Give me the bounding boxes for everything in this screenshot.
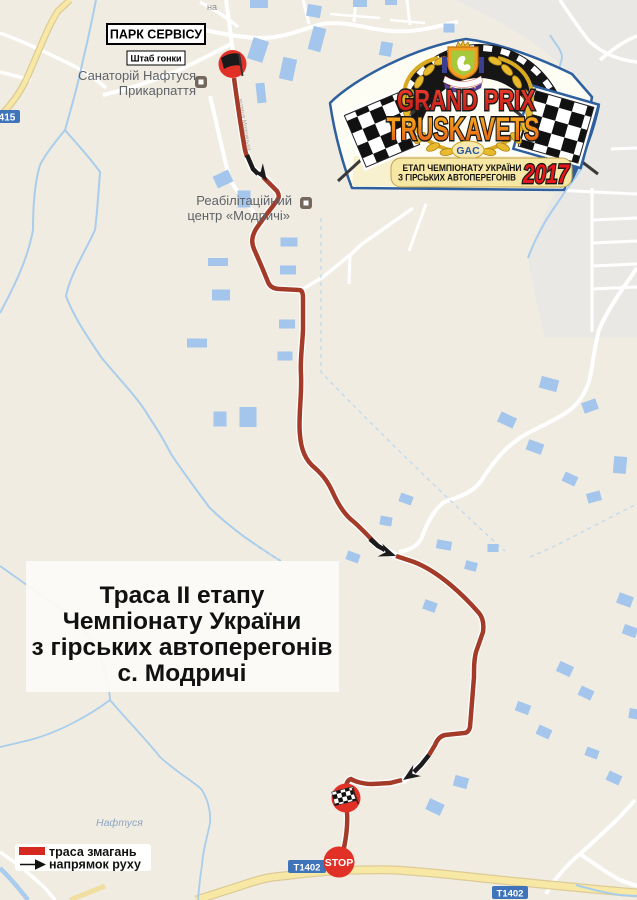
svg-text:Нафтуся: Нафтуся	[96, 817, 143, 829]
svg-text:ПАРК СЕРВІСУ: ПАРК СЕРВІСУ	[110, 28, 203, 42]
svg-text:Чемпіонату України: Чемпіонату України	[63, 608, 302, 635]
svg-text:GAC: GAC	[456, 145, 480, 157]
svg-text:STOP: STOP	[325, 857, 353, 869]
svg-text:центр «Модричі»: центр «Модричі»	[187, 208, 290, 223]
svg-text:Реабілітаційний: Реабілітаційний	[196, 193, 292, 208]
svg-text:на: на	[207, 2, 217, 12]
svg-text:Траса II етапу: Траса II етапу	[100, 582, 265, 609]
svg-text:ЕТАП ЧЕМПІОНАТУ УКРАЇНИ: ЕТАП ЧЕМПІОНАТУ УКРАЇНИ	[403, 163, 522, 173]
svg-text:З ГІРСЬКИХ АВТОПЕРЕГОНІВ: З ГІРСЬКИХ АВТОПЕРЕГОНІВ	[398, 173, 516, 183]
svg-text:Т1402: Т1402	[497, 889, 524, 900]
svg-text:Прикарпаття: Прикарпаття	[119, 83, 196, 98]
svg-text:с. Модричі: с. Модричі	[118, 660, 247, 687]
svg-text:Т1402: Т1402	[294, 863, 321, 874]
svg-text:415: 415	[0, 113, 16, 124]
svg-text:з гірських автоперегонів: з гірських автоперегонів	[32, 634, 333, 661]
svg-text:Штаб гонки: Штаб гонки	[130, 54, 181, 64]
svg-text:2017: 2017	[522, 159, 570, 189]
svg-text:напрямок руху: напрямок руху	[49, 858, 141, 872]
svg-text:Санаторій Нафтуся: Санаторій Нафтуся	[78, 68, 196, 83]
